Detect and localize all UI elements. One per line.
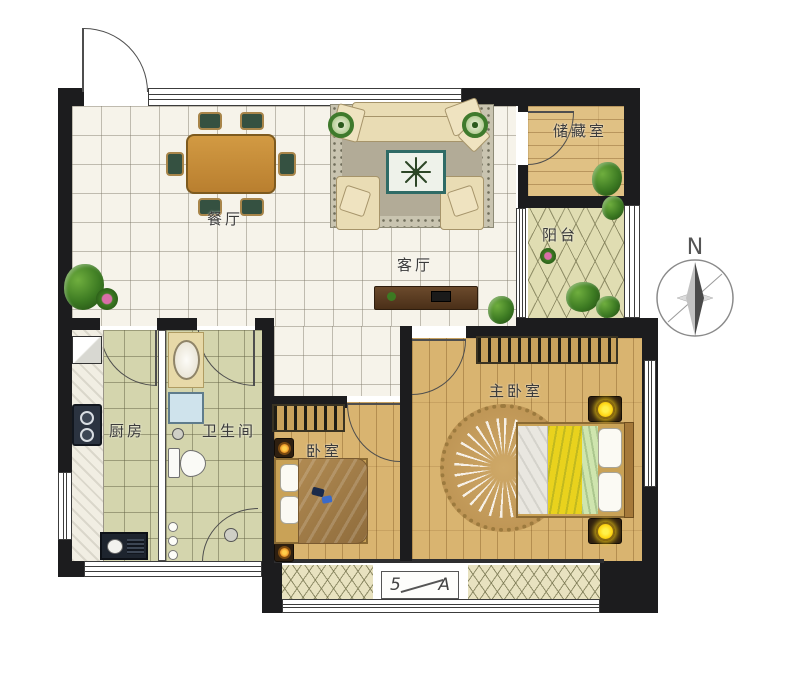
nightstand xyxy=(588,396,622,422)
wall-segment xyxy=(157,318,197,330)
dining-chair xyxy=(240,112,264,130)
wall-segment xyxy=(400,326,412,561)
bedside-lamp xyxy=(596,522,615,541)
section-marker-right: A xyxy=(438,575,450,595)
wall-segment xyxy=(516,318,642,338)
stove-burner xyxy=(80,411,94,425)
balcony-plant xyxy=(540,248,556,264)
master-blanket xyxy=(548,426,582,514)
flower-decor-icon xyxy=(389,153,443,191)
window xyxy=(282,599,600,613)
compass: N xyxy=(652,226,738,342)
pillow xyxy=(280,496,300,524)
wall-segment xyxy=(72,318,100,330)
floor-plan: 餐厅 客厅 储藏室 阳台 xyxy=(0,0,800,682)
bed-blanket xyxy=(298,458,368,544)
dining-chair xyxy=(166,152,184,176)
pillow xyxy=(598,472,622,512)
hallway-floor xyxy=(274,326,400,396)
bedside-lamp xyxy=(278,546,291,559)
wash-basin xyxy=(173,340,200,380)
bathroom-door-leaf xyxy=(253,330,255,386)
living-room-label: 客厅 xyxy=(383,254,447,275)
compass-needle-dark xyxy=(695,262,704,336)
toiletry-item xyxy=(168,536,178,546)
bathroom-label: 卫生间 xyxy=(196,420,262,441)
nightstand xyxy=(588,518,622,544)
wall-segment xyxy=(262,318,274,561)
master-bedroom-label: 主卧室 xyxy=(474,380,558,401)
kitchen-label: 厨房 xyxy=(98,420,156,441)
bed-sheet xyxy=(518,426,548,514)
bay-threshold xyxy=(274,559,604,563)
drain-rack xyxy=(127,539,144,554)
bedside-lamp xyxy=(278,442,291,455)
section-marker: 5 A xyxy=(381,571,459,599)
coffee-table xyxy=(386,150,446,194)
pillow xyxy=(280,464,300,492)
dining-chair xyxy=(278,152,296,176)
wall-segment xyxy=(518,165,528,196)
floor-drain xyxy=(172,428,184,440)
storage-room-label: 储藏室 xyxy=(540,120,620,141)
headboard xyxy=(624,422,634,518)
entry-door-arc xyxy=(84,28,148,92)
compass-north-label: N xyxy=(687,235,703,260)
dining-room-label: 餐厅 xyxy=(193,208,257,229)
toiletry-item xyxy=(168,550,178,560)
master-wardrobe xyxy=(476,336,618,364)
sink-bowl xyxy=(107,539,123,554)
compass-needle-light xyxy=(686,262,695,336)
stove-burner xyxy=(80,428,94,442)
wall-segment xyxy=(624,88,640,205)
wall-segment xyxy=(600,561,658,613)
nightstand xyxy=(274,438,294,458)
nightstand xyxy=(274,542,294,562)
window xyxy=(58,472,72,540)
wall-segment xyxy=(262,561,282,613)
tv-item xyxy=(387,292,396,301)
wall-segment xyxy=(518,106,528,112)
section-marker-line xyxy=(401,579,444,593)
dining-chair xyxy=(198,112,222,130)
potted-plant xyxy=(96,288,118,310)
toilet-tank xyxy=(168,448,180,478)
wall-segment xyxy=(58,88,84,106)
bedroom-label: 卧室 xyxy=(298,440,350,461)
floor-drain xyxy=(224,528,238,542)
balcony-railing xyxy=(624,205,640,318)
bedroom-wardrobe xyxy=(272,404,345,432)
topiary-plant xyxy=(462,112,488,138)
kitchen-door-leaf xyxy=(155,330,157,386)
master-quilt xyxy=(582,426,598,514)
section-marker-left: 5 xyxy=(390,575,401,595)
topiary-plant xyxy=(328,112,354,138)
window xyxy=(644,360,656,487)
pillow xyxy=(598,428,622,468)
tv-cabinet xyxy=(374,286,478,310)
fridge xyxy=(72,336,102,364)
bay-balcony-floor xyxy=(282,565,373,603)
tv-item xyxy=(431,291,451,302)
window xyxy=(84,561,262,577)
bay-balcony-floor xyxy=(468,565,600,603)
dining-table xyxy=(186,134,276,194)
master-door-leaf xyxy=(412,339,466,341)
kitchen-bath-partition xyxy=(158,330,166,561)
bedroom-door-leaf xyxy=(347,403,400,405)
toiletry-item xyxy=(168,522,178,532)
storage-door-leaf xyxy=(528,111,574,113)
balcony-sliding-door xyxy=(516,208,526,318)
balcony-label: 阳台 xyxy=(530,224,590,245)
kitchen-sink-unit xyxy=(100,532,148,560)
bedside-lamp xyxy=(596,400,615,419)
